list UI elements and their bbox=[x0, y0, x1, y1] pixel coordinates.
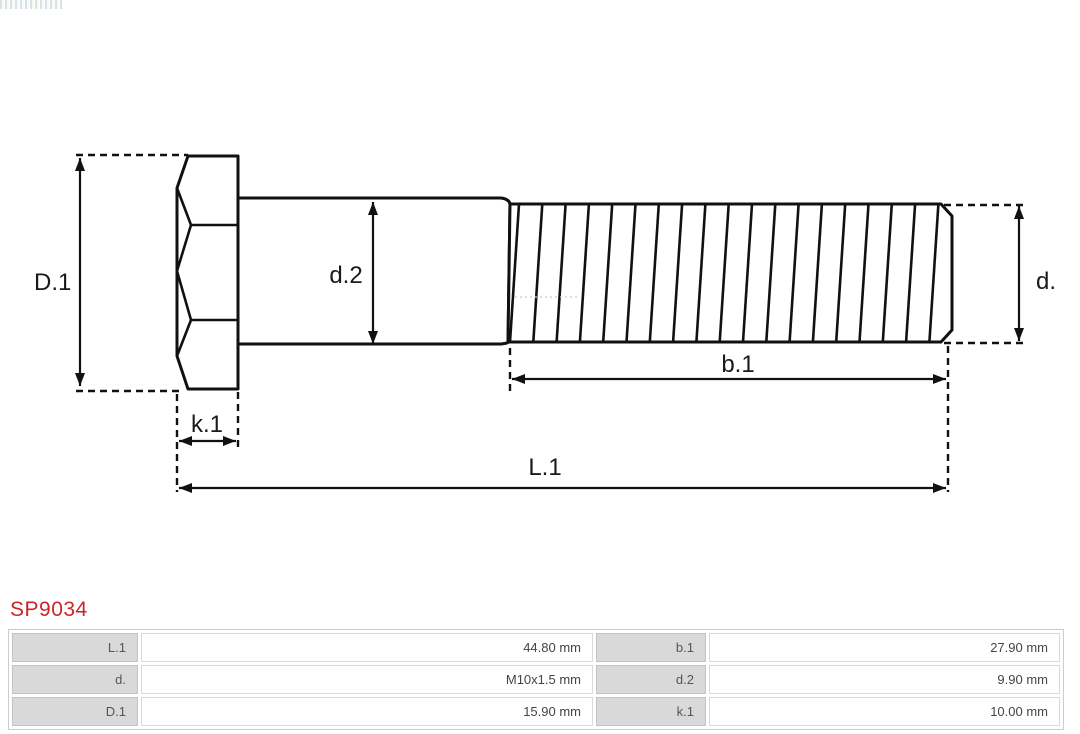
dim-value-cell: 44.80 mm bbox=[141, 633, 593, 662]
dim-name-cell: b.1 bbox=[596, 633, 706, 662]
dim-name-cell: k.1 bbox=[596, 697, 706, 726]
dim-label-d2: d.2 bbox=[329, 262, 362, 289]
table-row: L.1 44.80 mm b.1 27.90 mm bbox=[12, 633, 1060, 662]
table-row: d. M10x1.5 mm d.2 9.90 mm bbox=[12, 665, 1060, 694]
dimensions-table: L.1 44.80 mm b.1 27.90 mm d. M10x1.5 mm … bbox=[8, 629, 1064, 730]
dim-value-cell: 27.90 mm bbox=[709, 633, 1060, 662]
dim-value-cell: 15.90 mm bbox=[141, 697, 593, 726]
dim-value-cell: 10.00 mm bbox=[709, 697, 1060, 726]
part-number: SP9034 bbox=[10, 598, 88, 622]
dim-label-k1: k.1 bbox=[191, 411, 223, 438]
bolt-technical-drawing: D.1 d.2 d. b.1 k.1 L.1 bbox=[0, 0, 1080, 575]
dim-name-cell: L.1 bbox=[12, 633, 138, 662]
dim-name-cell: d.2 bbox=[596, 665, 706, 694]
bolt-hex-head bbox=[177, 156, 238, 389]
page: D.1 d.2 d. b.1 k.1 L.1 SP9034 L.1 44.80 … bbox=[0, 0, 1080, 734]
table-row: D.1 15.90 mm k.1 10.00 mm bbox=[12, 697, 1060, 726]
dim-label-D1: D.1 bbox=[34, 269, 71, 296]
dim-label-d: d. bbox=[1036, 268, 1056, 295]
dim-name-cell: D.1 bbox=[12, 697, 138, 726]
dim-value-cell: M10x1.5 mm bbox=[141, 665, 593, 694]
dim-name-cell: d. bbox=[12, 665, 138, 694]
dim-label-b1: b.1 bbox=[721, 351, 754, 378]
dim-value-cell: 9.90 mm bbox=[709, 665, 1060, 694]
dim-label-L1: L.1 bbox=[528, 454, 561, 481]
